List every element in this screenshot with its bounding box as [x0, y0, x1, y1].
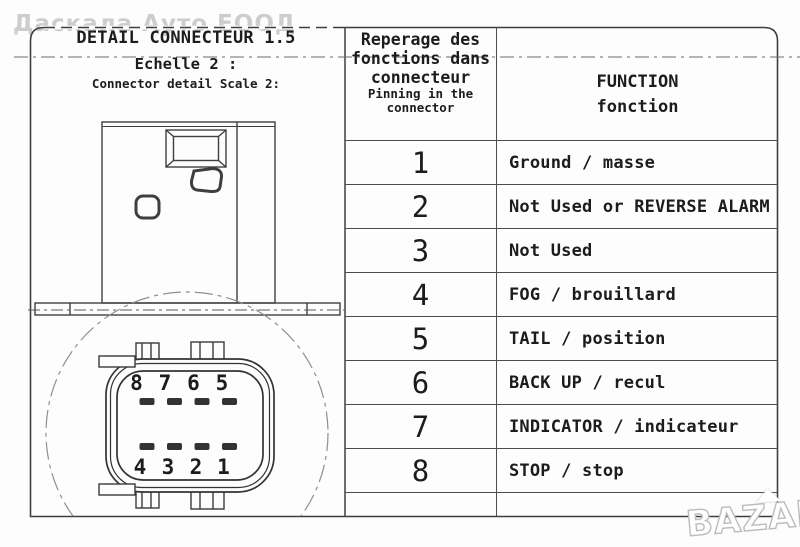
table-row: 7 INDICATOR / indicateur: [345, 405, 778, 449]
function-cell: STOP / stop: [497, 449, 778, 492]
latch-detail: [166, 130, 226, 167]
bazar-roof-icon: [755, 488, 780, 503]
pin-label-6: 6: [187, 371, 200, 395]
function-cell: INDICATOR / indicateur: [497, 405, 778, 448]
pin-label-2: 2: [190, 455, 203, 479]
header-en-line: Pinning in the: [345, 87, 496, 101]
table-row: 4 FOG / brouillard: [345, 273, 778, 317]
scale-label-en: Connector detail Scale 2:: [40, 76, 332, 91]
pin-number-cell: 4: [345, 273, 497, 316]
function-cell: Not Used or REVERSE ALARM: [497, 185, 778, 228]
pin-number-cell: 3: [345, 229, 497, 272]
detail-panel-titles: DETAIL CONNECTEUR 1.5 Echelle 2 : Connec…: [40, 28, 332, 91]
scale-label-fr: Echelle 2 :: [40, 55, 332, 73]
pin-number-cell: 7: [345, 405, 497, 448]
table-row: 1 Ground / masse: [345, 141, 778, 185]
left-clip-opening: [136, 196, 159, 218]
pin-number-cell: 6: [345, 361, 497, 404]
header-function-line: FUNCTION: [497, 70, 778, 95]
pin-label-3: 3: [162, 455, 175, 479]
pin-label-4: 4: [134, 455, 147, 479]
connector-side-view: [28, 122, 344, 315]
header-function-line: fonction: [497, 95, 778, 120]
header-en-line: connector: [345, 101, 496, 115]
table-row: 5 TAIL / position: [345, 317, 778, 361]
table-row: 3 Not Used: [345, 229, 778, 273]
header-fr-line: fonctions dans: [345, 49, 496, 68]
header-fr-line: Reperage des: [345, 30, 496, 49]
right-clip-opening: [191, 169, 221, 192]
mounting-flange: [35, 303, 340, 315]
pin-number-cell: 5: [345, 317, 497, 360]
pin-function-table: Reperage des fonctions dans connecteur P…: [345, 27, 778, 517]
pin-label-1: 1: [217, 455, 230, 479]
bottom-left-lip: [99, 484, 135, 495]
connector-pinout-sheet: Даскала Ауто ЕООД: [0, 0, 800, 547]
pin-number-cell: 8: [345, 449, 497, 492]
table-row: 2 Not Used or REVERSE ALARM: [345, 185, 778, 229]
connector-face-view: 8 7 6 5 4 3 2 1: [99, 342, 274, 509]
table-row: 8 STOP / stop: [345, 449, 778, 493]
pin-number-cell: 2: [345, 185, 497, 228]
pin-number-cell: 1: [345, 141, 497, 184]
pin-label-7: 7: [159, 371, 172, 395]
header-fr-line: connecteur: [345, 68, 496, 87]
pin-label-8: 8: [130, 371, 143, 395]
top-left-lip: [99, 356, 135, 367]
detail-title: DETAIL CONNECTEUR 1.5: [40, 28, 332, 48]
table-header-row: Reperage des fonctions dans connecteur P…: [345, 27, 778, 141]
table-row: 6 BACK UP / recul: [345, 361, 778, 405]
function-cell: Not Used: [497, 229, 778, 272]
function-cell: FOG / brouillard: [497, 273, 778, 316]
bottom-tabs: [136, 491, 224, 509]
function-cell: Ground / masse: [497, 141, 778, 184]
function-cell: TAIL / position: [497, 317, 778, 360]
top-tabs: [136, 342, 224, 360]
header-function-cell: FUNCTION fonction: [497, 27, 778, 140]
function-cell: BACK UP / recul: [497, 361, 778, 404]
header-pinning-cell: Reperage des fonctions dans connecteur P…: [345, 27, 497, 140]
pin-label-5: 5: [216, 371, 229, 395]
pin-number-cell: [345, 493, 497, 516]
